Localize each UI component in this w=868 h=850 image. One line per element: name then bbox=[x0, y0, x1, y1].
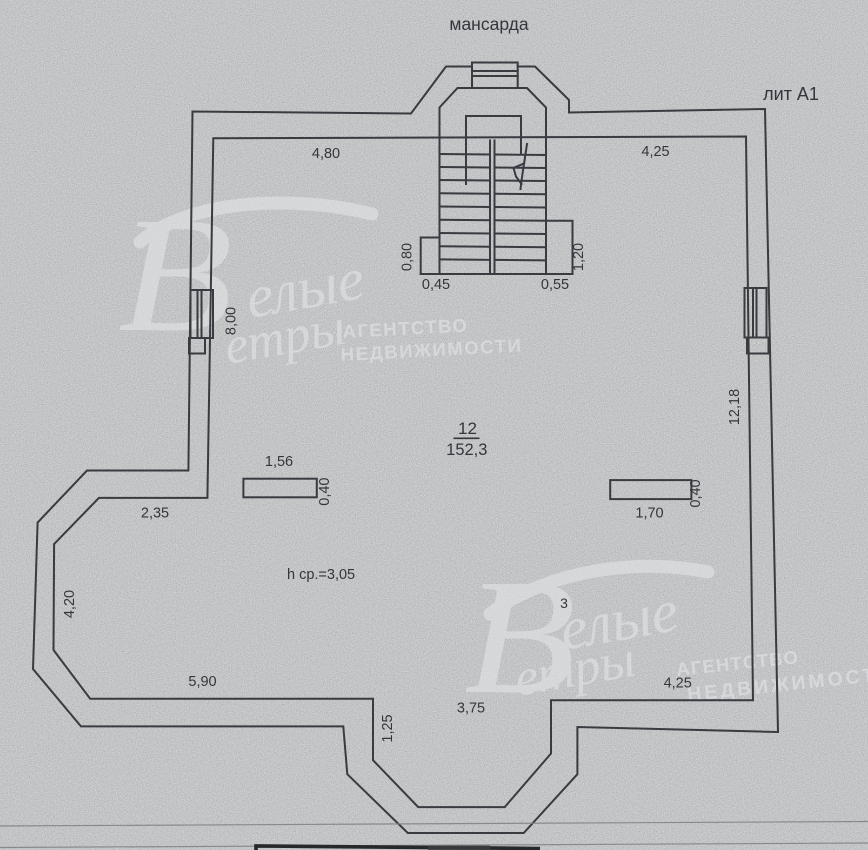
svg-text:3: 3 bbox=[560, 595, 568, 611]
svg-text:лит А1: лит А1 bbox=[763, 84, 819, 104]
svg-text:4,80: 4,80 bbox=[312, 146, 340, 162]
svg-text:1,56: 1,56 bbox=[265, 454, 293, 470]
svg-text:1,70: 1,70 bbox=[635, 506, 663, 522]
svg-text:12: 12 bbox=[458, 419, 477, 438]
svg-text:8,00: 8,00 bbox=[224, 307, 240, 335]
svg-text:12,18: 12,18 bbox=[727, 389, 743, 425]
svg-text:5,90: 5,90 bbox=[188, 674, 216, 690]
svg-text:0,55: 0,55 bbox=[541, 277, 569, 293]
svg-text:мансарда: мансарда bbox=[449, 14, 528, 34]
svg-text:0,45: 0,45 bbox=[422, 277, 450, 293]
svg-text:h ср.=3,05: h ср.=3,05 bbox=[287, 567, 355, 583]
svg-text:0,40: 0,40 bbox=[688, 479, 704, 507]
svg-text:1,20: 1,20 bbox=[571, 243, 587, 271]
svg-text:4,25: 4,25 bbox=[664, 676, 692, 692]
svg-text:0,80: 0,80 bbox=[400, 243, 416, 271]
svg-text:2,35: 2,35 bbox=[141, 506, 169, 522]
svg-text:1,25: 1,25 bbox=[380, 714, 396, 742]
svg-text:0,40: 0,40 bbox=[317, 477, 333, 505]
svg-text:4,20: 4,20 bbox=[62, 590, 78, 618]
svg-text:В: В bbox=[118, 183, 233, 366]
svg-text:3,75: 3,75 bbox=[457, 701, 485, 717]
svg-text:4,25: 4,25 bbox=[641, 144, 669, 160]
svg-text:152,3: 152,3 bbox=[446, 441, 487, 459]
